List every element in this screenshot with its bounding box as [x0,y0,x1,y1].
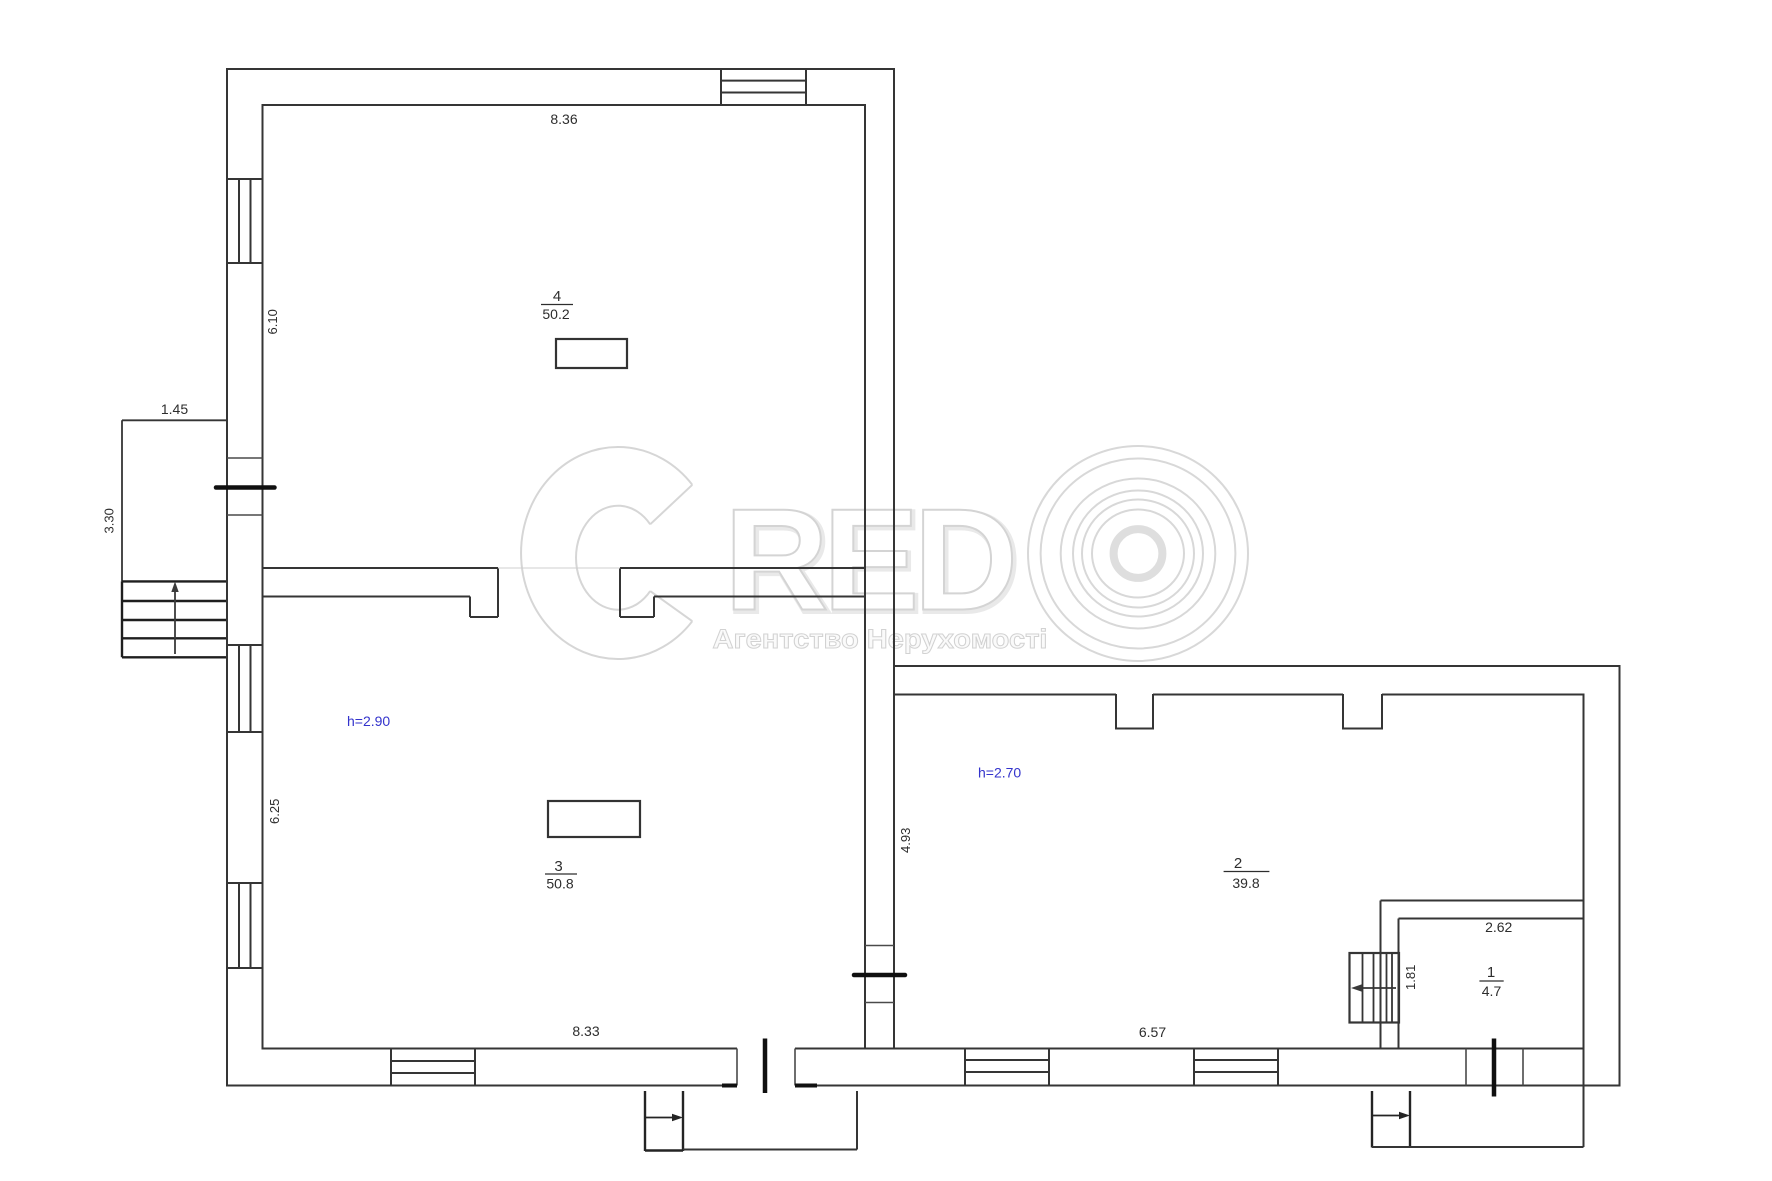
svg-text:1.81: 1.81 [1403,965,1418,990]
svg-text:39.8: 39.8 [1232,875,1259,891]
svg-text:h=2.70: h=2.70 [978,765,1021,781]
svg-text:2: 2 [1234,855,1242,872]
svg-text:3.30: 3.30 [102,508,117,533]
svg-text:h=2.90: h=2.90 [347,713,390,729]
svg-text:4: 4 [553,288,561,305]
svg-text:50.2: 50.2 [542,306,569,322]
svg-text:RED: RED [724,479,1012,641]
svg-text:1.45: 1.45 [161,401,188,417]
svg-text:8.33: 8.33 [572,1023,599,1039]
svg-text:Агентство Нерухомості: Агентство Нерухомості [713,624,1048,654]
svg-text:50.8: 50.8 [546,876,573,892]
svg-text:1: 1 [1487,964,1495,981]
svg-text:2.62: 2.62 [1485,919,1512,935]
svg-text:8.36: 8.36 [550,111,577,127]
svg-text:6.57: 6.57 [1139,1024,1166,1040]
svg-text:4.93: 4.93 [898,828,913,853]
svg-text:3: 3 [554,858,562,875]
svg-text:6.25: 6.25 [267,799,282,824]
svg-text:4.7: 4.7 [1482,983,1502,999]
svg-text:6.10: 6.10 [265,309,280,334]
